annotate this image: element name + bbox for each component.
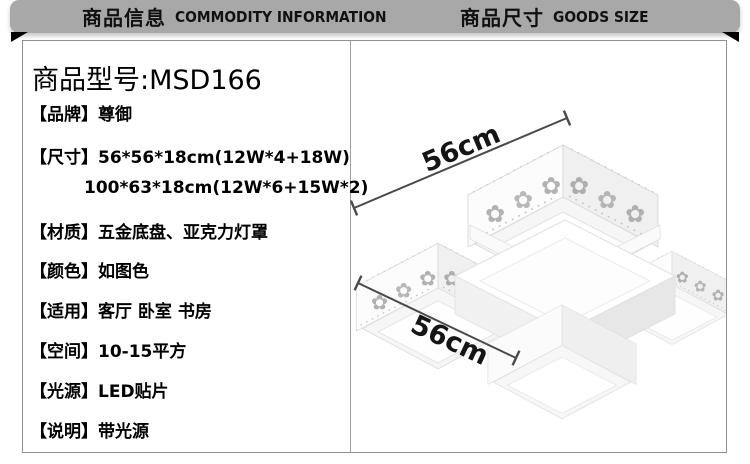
spec-row-color: 【颜色】如图色 (30, 257, 149, 282)
spec-label: 【材质】 (30, 223, 98, 243)
spec-label: 【尺寸】 (30, 148, 98, 168)
spec-row-usage: 【适用】客厅 卧室 书房 (30, 297, 212, 322)
spec-value: 10-15平方 (98, 342, 186, 362)
dim-top-label: 56cm (418, 118, 505, 178)
spec-row-note: 【说明】带光源 (30, 417, 149, 442)
spec-row-size: 【尺寸】56*56*18cm(12W*4+18W) (30, 143, 350, 168)
spec-label: 【光源】 (30, 382, 98, 402)
spec-row-size-cont: 100*63*18cm(12W*6+15W*2) (84, 178, 368, 198)
spec-row-space: 【空间】10-15平方 (30, 337, 186, 362)
header-commodity-information: 商品信息 COMMODITY INFORMATION (82, 0, 405, 33)
spec-value: 带光源 (98, 422, 149, 442)
header-left-cn: 商品信息 (82, 2, 166, 31)
spec-value: LED贴片 (98, 382, 169, 402)
spec-label: 【适用】 (30, 302, 98, 322)
spec-value: 56*56*18cm(12W*4+18W) (98, 148, 350, 168)
product-model: 商品型号:MSD166 (32, 58, 262, 97)
spec-row-material: 【材质】五金底盘、亚克力灯罩 (30, 218, 268, 243)
spec-row-brand: 【品牌】尊御 (30, 100, 132, 125)
spec-value: 如图色 (98, 262, 149, 282)
ceiling-lamp-image: ✿ ✿ ✿ ✿ ✿ ✿ (350, 40, 726, 451)
spec-value: 客厅 卧室 书房 (98, 302, 212, 322)
header-right-en: GOODS SIZE (553, 8, 649, 26)
spec-row-lightsource: 【光源】LED贴片 (30, 377, 169, 402)
spec-value: 尊御 (98, 105, 132, 125)
spec-value: 100*63*18cm(12W*6+15W*2) (84, 178, 368, 198)
header-left-en: COMMODITY INFORMATION (175, 8, 386, 26)
header-goods-size: 商品尺寸 GOODS SIZE (460, 0, 657, 33)
header-ribbon: 商品信息 COMMODITY INFORMATION 商品尺寸 GOODS SI… (10, 0, 740, 33)
size-panel: ✿ ✿ ✿ ✿ ✿ ✿ (350, 40, 726, 451)
product-detail-page: 商品信息 COMMODITY INFORMATION 商品尺寸 GOODS SI… (0, 0, 750, 464)
header-right-cn: 商品尺寸 (460, 2, 544, 31)
spec-label: 【空间】 (30, 342, 98, 362)
spec-label: 【品牌】 (30, 105, 98, 125)
spec-value: 五金底盘、亚克力灯罩 (98, 223, 268, 243)
spec-label: 【颜色】 (30, 262, 98, 282)
spec-label: 【说明】 (30, 422, 98, 442)
